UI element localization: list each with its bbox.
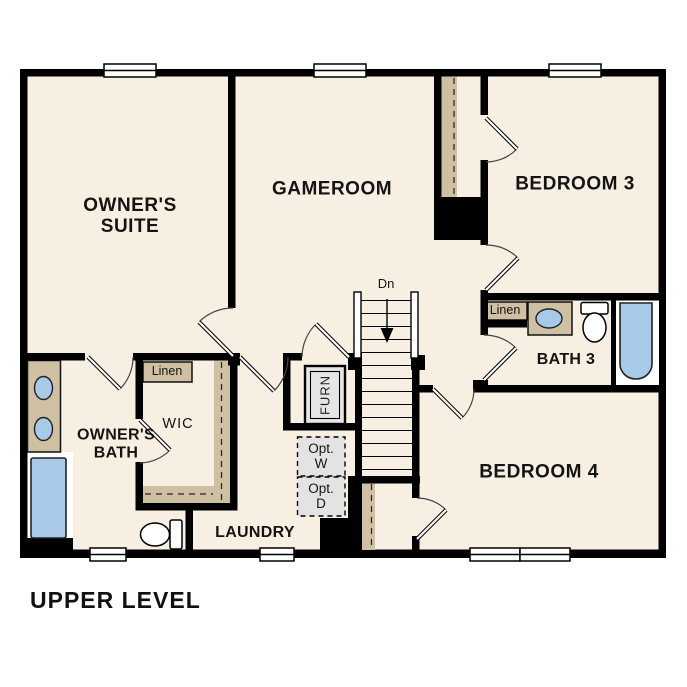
window — [470, 548, 520, 561]
laundry-label: LAUNDRY — [215, 524, 295, 542]
opt-washer-label-line2: W — [308, 456, 334, 471]
linen-hall-label: Linen — [152, 365, 183, 379]
floorplan-canvas — [0, 0, 687, 687]
opt-dryer-label-line1: Opt. — [308, 481, 334, 496]
owners-bath-label: OWNER'S BATH — [77, 426, 155, 461]
owners-bath-label-line1: OWNER'S — [77, 426, 155, 444]
stair-rail-right — [411, 292, 418, 358]
sink-icon — [35, 377, 53, 400]
bedroom3-label: BEDROOM 3 — [515, 175, 635, 196]
opt-washer-label-line1: Opt. — [308, 441, 334, 456]
owners-suite-label-line2: SUITE — [83, 217, 177, 238]
owners-suite-label: OWNER'S SUITE — [83, 196, 177, 238]
owners-bath-label-line2: BATH — [77, 444, 155, 462]
sink-icon — [35, 418, 53, 441]
bath3-tub — [620, 303, 652, 379]
bedroom4-closet-shelf — [362, 484, 375, 551]
bedroom3-closet-shelf — [442, 77, 458, 198]
opt-dryer-label-line2: D — [308, 496, 334, 511]
owners-suite-label-line1: OWNER'S — [83, 196, 177, 217]
window — [314, 64, 366, 77]
bedroom4-label: BEDROOM 4 — [479, 463, 599, 484]
sink-icon — [536, 309, 562, 328]
bath3-label: BATH 3 — [537, 351, 595, 369]
window — [549, 64, 601, 77]
furnace-label: FURN — [318, 375, 333, 415]
opt-washer-label: Opt. W — [308, 441, 334, 471]
opt-dryer-label: Opt. D — [308, 481, 334, 511]
window — [520, 548, 570, 561]
owners-bath-tub — [31, 458, 66, 538]
window — [260, 548, 294, 561]
window — [104, 64, 156, 77]
stair-rail-left — [354, 292, 361, 358]
wic-label: WIC — [162, 417, 193, 433]
floorplan-page: OWNER'S SUITE GAMEROOM BEDROOM 3 BATH 3 … — [0, 0, 687, 687]
toilet-icon — [141, 520, 183, 549]
window — [90, 548, 126, 561]
linen-bath3-label: Linen — [490, 304, 521, 318]
stairs-dn-label: Dn — [378, 277, 395, 291]
toilet-icon — [581, 303, 608, 343]
page-title: UPPER LEVEL — [30, 587, 201, 614]
gameroom-label: GAMEROOM — [272, 180, 392, 201]
